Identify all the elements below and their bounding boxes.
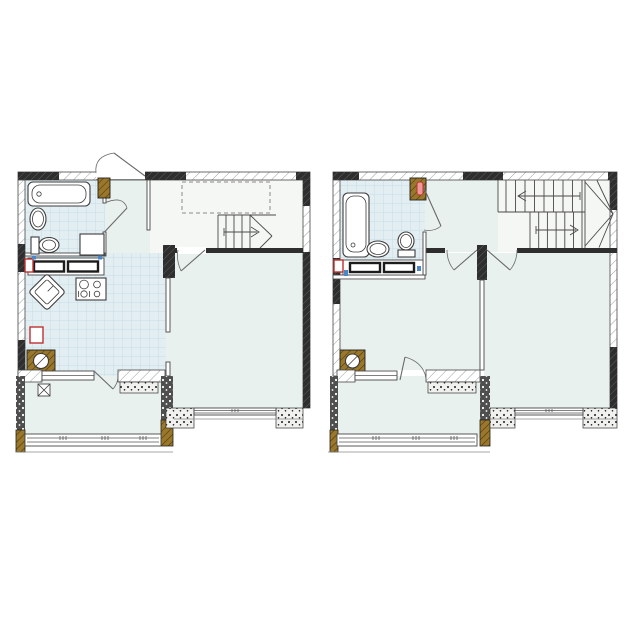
vent-shaft-icon xyxy=(340,350,365,372)
balcony-wall xyxy=(330,376,338,430)
column xyxy=(477,245,487,280)
faucet-mark xyxy=(417,266,421,271)
faucet-mark xyxy=(32,256,36,260)
vent-shaft-icon xyxy=(27,350,55,372)
balcony-window xyxy=(328,434,490,452)
column-marker xyxy=(38,384,50,396)
washbasin-icon xyxy=(30,208,46,230)
floorplan-level-1 xyxy=(14,140,314,460)
bedroom-window xyxy=(490,408,617,428)
red-riser xyxy=(25,259,33,272)
toilet-icon xyxy=(398,232,415,257)
kitchen-counter xyxy=(25,256,104,276)
living-room-window xyxy=(166,408,303,428)
balcony-window xyxy=(16,434,173,452)
balcony-kitchen-window xyxy=(42,371,94,380)
gas-riser-icon xyxy=(30,327,43,343)
floorplan-level-2 xyxy=(320,140,630,460)
floor-plans-image xyxy=(0,0,640,640)
faucet-mark xyxy=(98,256,102,260)
toilet-icon xyxy=(31,237,59,254)
washing-machine-icon xyxy=(80,234,104,255)
bathtub-icon xyxy=(28,182,90,206)
level2-floor-fills xyxy=(337,180,617,438)
bathtub-icon xyxy=(343,193,369,257)
balcony-wall xyxy=(480,376,490,420)
cooktop-icon xyxy=(76,278,106,300)
boiler-riser-icon xyxy=(410,178,426,200)
vanity-counter xyxy=(334,260,423,276)
red-riser xyxy=(334,260,343,272)
column xyxy=(163,245,175,278)
riser-box-icon xyxy=(98,178,110,198)
balcony-wall xyxy=(16,376,25,430)
washbasin-icon xyxy=(367,241,389,257)
faucet-mark xyxy=(344,270,348,276)
balcony-bedroom-window xyxy=(355,371,397,380)
